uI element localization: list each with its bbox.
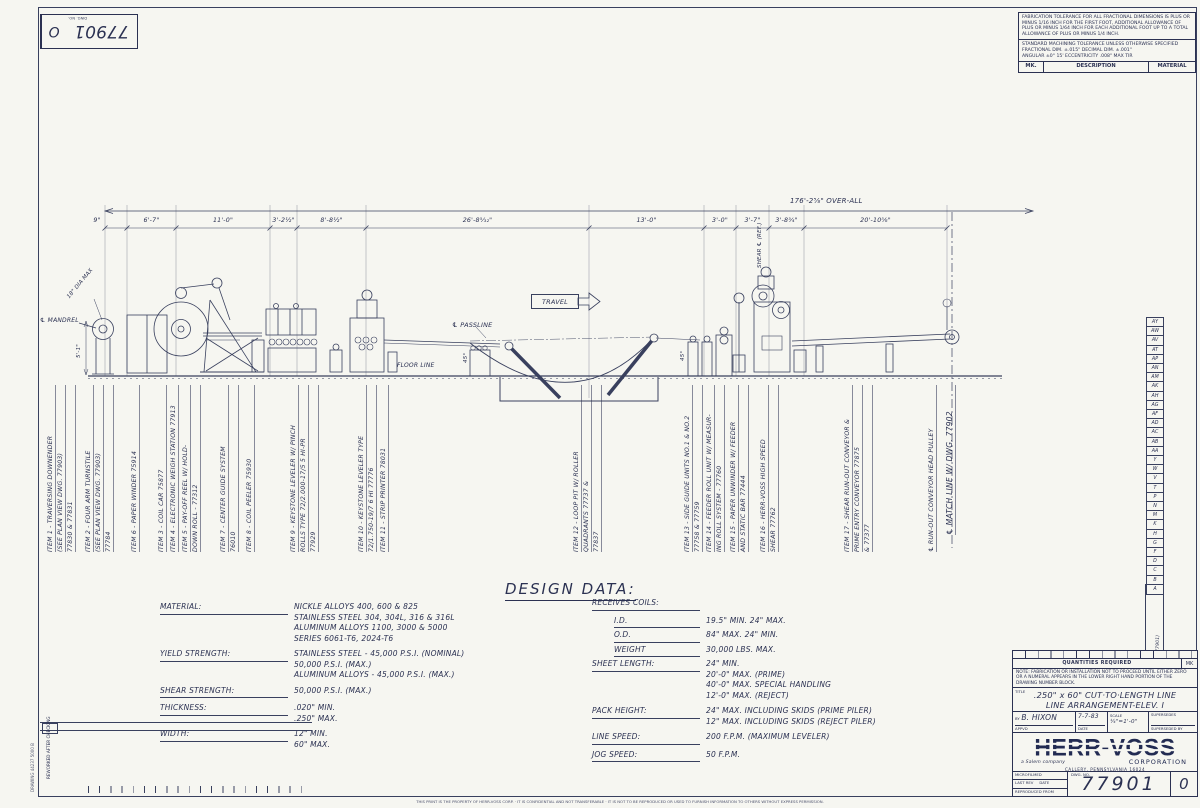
angle-label-left: 45° <box>463 353 469 363</box>
parts-mk-header: MK. <box>1019 62 1044 72</box>
design-data-values: 84" MAX. 24" MIN. <box>700 630 778 641</box>
quantities-label: QUANTITIES REQUIRED <box>1013 661 1181 666</box>
dwg-number-cell: DWG. NO. 77901 <box>1068 772 1170 796</box>
drawing-sheet: 77901 DWG. NO. O FABRICATION TOLERANCE F… <box>0 0 1200 808</box>
item-callout-line: ITEM 2 - FOUR ARM TURNSTILE <box>84 385 94 552</box>
herr-voss-logo: HERR-VOSS <box>1034 736 1175 759</box>
quantities-bar: QUANTITIES REQUIRED MK <box>1013 659 1197 669</box>
design-data-value: 24" MAX. INCLUDING SKIDS (PRIME PILER) <box>706 706 876 717</box>
item-callout-line: ITEM 17 - SHEAR RUN-OUT CONVEYOR & <box>843 385 853 552</box>
design-data-row: WIDTH:12" MIN.60" MAX. <box>160 729 580 750</box>
logo-stripe <box>1034 743 1175 745</box>
dimension-segment-label: 26'-8⁵⁄₃₂" <box>463 217 493 224</box>
item-callout: ITEM 15 - PAPER UNWINDER W/ FEEDERAND ST… <box>729 385 749 552</box>
title-label: TITLE <box>1015 689 1025 694</box>
dwg-number-row: MICROFILMED LAST REV DATE REPRODUCED FRO… <box>1013 772 1197 796</box>
corner-dwg-number: 77901 DWG. NO. <box>66 15 137 48</box>
corner-dwg-number-block: 77901 DWG. NO. O <box>40 14 138 49</box>
item-callout-line: ITEM 5 - PAY-OFF REEL W/ HOLD- <box>181 385 191 552</box>
item-callout: ITEM 10 - KEYSTONE LEVELER TYPE72/1.750-… <box>357 385 377 552</box>
date-cell: 7-7-83 DATE <box>1076 712 1108 732</box>
item-callout-line: ITEM 10 - KEYSTONE LEVELER TYPE <box>357 385 367 552</box>
scale-label: SCALE <box>1110 713 1122 718</box>
supersedes-cell: SUPERSEDES SUPERSEDED BY <box>1149 712 1197 732</box>
item-callout-line: 76010 <box>229 385 239 552</box>
design-data-values: 200 F.P.M. (MAXIMUM LEVELER) <box>700 732 830 743</box>
item-callout: ITEM 3 - COIL CAR 75877 <box>157 385 167 552</box>
tolerance-block: FABRICATION TOLERANCE FOR ALL FRACTIONAL… <box>1018 12 1196 73</box>
margin-line <box>40 730 312 731</box>
design-data-values: 30,000 LBS. MAX. <box>700 645 776 656</box>
design-data-value: 84" MAX. 24" MIN. <box>706 630 778 641</box>
overall-dimension: 176'-2⅝" OVER-ALL <box>790 197 863 205</box>
design-data-left-column: MATERIAL:NICKLE ALLOYS 400, 600 & 825STA… <box>160 602 580 755</box>
item-callout-line: ITEM 3 - COIL CAR 75877 <box>157 385 167 552</box>
date-label: DATE <box>1078 725 1105 732</box>
item-callout-line: 77830 & 77831 <box>66 385 76 552</box>
machining-tolerance-note: STANDARD MACHINING TOLERANCE UNLESS OTHE… <box>1018 40 1196 62</box>
design-data-value: NICKLE ALLOYS 400, 600 & 825 <box>294 602 455 613</box>
mandrel-label: ℄ MANDREL <box>40 317 79 324</box>
appvd-label: APPVD <box>1015 725 1073 732</box>
design-data-row: MATERIAL:NICKLE ALLOYS 400, 600 & 825STA… <box>160 602 580 644</box>
margin-ruler <box>88 786 312 793</box>
item-callout: ITEM 2 - FOUR ARM TURNSTILE(SEE PLAN VIE… <box>84 385 114 552</box>
design-data-label: YIELD STRENGTH: <box>160 649 288 662</box>
design-data-row: JOG SPEED:50 F.P.M. <box>592 750 1032 763</box>
design-data-value: SERIES 6061-T6, 2024-T6 <box>294 634 455 645</box>
item-callout-line: 72/1.750-19/7 6 HI 77776 <box>367 385 377 552</box>
corner-revision: O <box>41 15 66 48</box>
item-callout-line: (SEE PLAN VIEW DWG. 77903) <box>56 385 66 552</box>
item-callout: ℄ RUN-OUT CONVEYOR HEAD PULLEY <box>927 385 937 552</box>
last-rev-label: LAST REV <box>1015 781 1033 786</box>
item-callout-line: ITEM 14 - FEEDER ROLL UNIT W/ MEASUR- <box>705 385 715 552</box>
dimension-segment-label: 9" <box>93 217 100 224</box>
design-data-label: RECEIVES COILS: <box>592 598 700 611</box>
design-data-value: 50 F.P.M. <box>706 750 740 761</box>
parts-list-header: MK. DESCRIPTION MATERIAL <box>1018 62 1196 73</box>
design-data-value: 50,000 P.S.I. (MAX.) <box>294 660 464 671</box>
supersedes-label: SUPERSEDES <box>1151 713 1195 718</box>
approval-row: BY B. HIXON APPVD 7-7-83 DATE SCALE ¼"=1… <box>1013 712 1197 733</box>
item-callout-line: ING ROLL SYSTEM - 77760 <box>715 385 725 552</box>
item-callout-line: ℄ RUN-OUT CONVEYOR HEAD PULLEY <box>927 385 937 552</box>
design-data-value: STAINLESS STEEL - 45,000 P.S.I. (NOMINAL… <box>294 649 464 660</box>
design-data-label: LINE SPEED: <box>592 732 700 745</box>
item-callout-line: ITEM 4 - ELECTRONIC WEIGH STATION 77913 <box>169 385 179 552</box>
reproduced-from-label: REPRODUCED FROM <box>1013 789 1067 796</box>
design-data-value: 20'-0" MAX. (PRIME) <box>706 670 831 681</box>
design-data-label: SHEAR STRENGTH: <box>160 686 288 699</box>
dimension-segment-label: 13'-0" <box>636 217 656 224</box>
item-callout-line: ITEM 16 - HERR-VOSS HIGH SPEED <box>759 385 769 552</box>
design-data-row: SHEET LENGTH:24" MIN.20'-0" MAX. (PRIME)… <box>592 659 1032 701</box>
design-data-row: O.D.84" MAX. 24" MIN. <box>592 630 1032 643</box>
dimension-segment-label: 20'-10⅝" <box>860 217 891 224</box>
design-data-values: STAINLESS STEEL - 45,000 P.S.I. (NOMINAL… <box>288 649 464 681</box>
design-data-row: WEIGHT30,000 LBS. MAX. <box>592 645 1032 658</box>
quantities-grid <box>1013 651 1197 659</box>
mk-cell: MK <box>1181 659 1197 668</box>
item-callout-line: ITEM 15 - PAPER UNWINDER W/ FEEDER <box>729 385 739 552</box>
design-data-values: .020" MIN..250" MAX. <box>288 703 338 724</box>
logo-stripe <box>1034 749 1175 751</box>
revision-cell-main: 0 <box>1170 772 1197 796</box>
superseded-by-label: SUPERSEDED BY <box>1151 725 1195 732</box>
design-data-values: 24" MAX. INCLUDING SKIDS (PRIME PILER)12… <box>700 706 876 727</box>
item-callout-line: ITEM 1 - TRAVERSING DOWNENDER <box>46 385 56 552</box>
design-data-value: 200 F.P.M. (MAXIMUM LEVELER) <box>706 732 830 743</box>
fabrication-tolerance-note: FABRICATION TOLERANCE FOR ALL FRACTIONAL… <box>1018 12 1196 40</box>
design-data-value: ALUMINUM ALLOYS - 45,000 P.S.I. (MAX.) <box>294 670 464 681</box>
item-callout: ITEM 16 - HERR-VOSS HIGH SPEEDSHEAR 7776… <box>759 385 779 552</box>
design-data-row: LINE SPEED:200 F.P.M. (MAXIMUM LEVELER) <box>592 732 1032 745</box>
design-data-label: SHEET LENGTH: <box>592 659 700 672</box>
design-data-values: 19.5" MIN. 24" MAX. <box>700 616 786 627</box>
item-callout-line: ITEM 6 - PAPER WINDER 75914 <box>130 385 140 552</box>
design-data-row: RECEIVES COILS: <box>592 598 1032 611</box>
item-callout-line: 77758 & 77759 <box>693 385 703 552</box>
parts-material-header: MATERIAL <box>1149 62 1195 72</box>
design-data-row: PACK HEIGHT:24" MAX. INCLUDING SKIDS (PR… <box>592 706 1032 727</box>
item-callout: ITEM 6 - PAPER WINDER 75914 <box>130 385 140 552</box>
record-cells: MICROFILMED LAST REV DATE REPRODUCED FRO… <box>1013 772 1068 796</box>
item-callout: ITEM 5 - PAY-OFF REEL W/ HOLD-DOWN ROLL … <box>181 385 201 552</box>
design-data-value: 12" MAX. INCLUDING SKIDS (REJECT PILER) <box>706 717 876 728</box>
reworked-note: REWORKED AFTER CHECKING <box>46 717 51 780</box>
design-data-value: 19.5" MIN. 24" MAX. <box>706 616 786 627</box>
design-data-value: ALUMINUM ALLOYS 1100, 3000 & 5000 <box>294 623 455 634</box>
company-name: HERR-VOSS <box>1034 734 1175 761</box>
item-callout-line: ITEM 8 - COIL PEELER 75930 <box>245 385 255 552</box>
design-data-values: 50 F.P.M. <box>700 750 740 761</box>
last-rev-date-label: DATE <box>1039 781 1049 786</box>
dwg-number-value: 77901 <box>1081 773 1156 795</box>
design-data-right-column: RECEIVES COILS:I.D.19.5" MIN. 24" MAX.O.… <box>592 598 1032 767</box>
design-data-value: STAINLESS STEEL 304, 304L, 316 & 316L <box>294 613 455 624</box>
design-data-value: 12'-0" MAX. (REJECT) <box>706 691 831 702</box>
item-callout-line: (SEE PLAN VIEW DWG. 77903) <box>94 385 104 552</box>
item-callout-line: QUADRANTS 77737 & <box>582 385 592 552</box>
angle-label-right: 45° <box>680 351 686 361</box>
design-data-label: WEIGHT <box>614 645 700 658</box>
travel-direction-label: TRAVEL <box>531 294 579 309</box>
design-data-value: 40'-0" MAX. SPECIAL HANDLING <box>706 680 831 691</box>
company-logo-block: HERR-VOSS a Salem company CORPORATION CA… <box>1013 733 1197 772</box>
design-data-value: 24" MIN. <box>706 659 831 670</box>
scale-value: ¼"=1'-0" <box>1110 719 1146 725</box>
fine-print: THIS PRINT IS THE PROPERTY OF HERR-VOSS … <box>400 799 840 804</box>
item-callout: ℄ MATCH LINE W/ DWG. 77902 <box>944 385 956 535</box>
item-callout: ITEM 17 - SHEAR RUN-OUT CONVEYOR &PRIME … <box>843 385 873 552</box>
parts-description-header: DESCRIPTION <box>1044 62 1149 72</box>
item-callout-line: AND STATIC BAR 77444 <box>739 385 749 552</box>
dwg-no-label: DWG. NO. <box>1071 773 1090 778</box>
design-data-values: 50,000 P.S.I. (MAX.) <box>288 686 372 697</box>
design-data-label: JOG SPEED: <box>592 750 700 763</box>
item-callout-line: ITEM 7 - CENTER GUIDE SYSTEM <box>219 385 229 552</box>
design-data-row: YIELD STRENGTH:STAINLESS STEEL - 45,000 … <box>160 649 580 681</box>
item-callout-line: ITEM 12 - LOOP PIT W/ ROLLER <box>572 385 582 552</box>
dwg-number: 77901 <box>74 22 129 42</box>
corporation-label: CORPORATION <box>1129 758 1187 766</box>
scale-cell: SCALE ¼"=1'-0" <box>1108 712 1149 732</box>
item-callout-line: 77837 <box>592 385 602 552</box>
design-data-value: 60" MAX. <box>294 740 330 751</box>
design-data-values: NICKLE ALLOYS 400, 600 & 825STAINLESS ST… <box>288 602 455 644</box>
item-callout: ITEM 13 - SIDE GUIDE UNITS NO.1 & NO.277… <box>683 385 703 552</box>
title-line-2: LINE ARRANGEMENT-ELEV. I <box>1015 700 1195 710</box>
revision-extra-box <box>1145 584 1164 660</box>
item-callout-line: PRIME ENTRY CONVEYOR 77875 <box>853 385 863 552</box>
item-callout-line: 77784 <box>104 385 114 552</box>
dimension-segment-label: 6'-7" <box>144 217 160 224</box>
date-value: 7-7-83 <box>1078 713 1099 720</box>
item-callout: ITEM 9 - KEYSTONE LEVELER W/ PINCHROLLS … <box>289 385 319 552</box>
design-data-row: SHEAR STRENGTH:50,000 P.S.I. (MAX.) <box>160 686 580 699</box>
shear-centerline-label: SHEAR ℄ (REF.) <box>757 222 763 268</box>
title-block: QUANTITIES REQUIRED MK NOTE: FABRICATION… <box>1012 650 1198 797</box>
design-data-label: O.D. <box>614 630 700 643</box>
item-callout-line: DOWN ROLL - 77312 <box>191 385 201 552</box>
item-callout-line: SHEAR 77762 <box>769 385 779 552</box>
drawing-title: TITLE .250" x 60" CUT·TO·LENGTH LINE LIN… <box>1013 688 1197 712</box>
item-callout: ITEM 12 - LOOP PIT W/ ROLLERQUADRANTS 77… <box>572 385 602 552</box>
height-dimension: 5'-1" <box>76 344 82 358</box>
dimension-segment-label: 8'-8½" <box>320 217 342 224</box>
item-callout: ITEM 4 - ELECTRONIC WEIGH STATION 77913 <box>169 385 179 552</box>
design-data-row: THICKNESS:.020" MIN..250" MAX. <box>160 703 580 724</box>
design-data-row: I.D.19.5" MIN. 24" MAX. <box>592 616 1032 629</box>
drawn-by-cell: BY B. HIXON APPVD <box>1013 712 1076 732</box>
item-callout-line: ITEM 9 - KEYSTONE LEVELER W/ PINCH <box>289 385 299 552</box>
design-data-value: .020" MIN. <box>294 703 338 714</box>
machining-line3: ANGULAR ±0° 15' ECCENTRICITY .008" MAX T… <box>1022 54 1192 60</box>
design-data-value: 30,000 LBS. MAX. <box>706 645 776 656</box>
item-callout-line: 77929 <box>309 385 319 552</box>
dimension-segment-label: 3'-8¾" <box>775 217 797 224</box>
design-data-values: 24" MIN.20'-0" MAX. (PRIME)40'-0" MAX. S… <box>700 659 831 701</box>
passline-label: ℄ PASSLINE <box>452 321 492 329</box>
item-callout: ITEM 7 - CENTER GUIDE SYSTEM76010 <box>219 385 239 552</box>
margin-line <box>40 722 312 723</box>
item-callout-line: ITEM 13 - SIDE GUIDE UNITS NO.1 & NO.2 <box>683 385 693 552</box>
item-callout-line: ROLLS TYPE 72/2.000-17/5 5 HI-PR <box>299 385 309 552</box>
dimension-segment-label: 3'-0" <box>712 217 728 224</box>
item-callout: ITEM 14 - FEEDER ROLL UNIT W/ MEASUR-ING… <box>705 385 725 552</box>
dimension-segment-label: 3'-2½" <box>272 217 294 224</box>
form-number: DRAWING 44237 5000 B <box>30 743 35 792</box>
proceed-note: NOTE: FABRICATION OR INSTALLATION NOT TO… <box>1013 669 1197 688</box>
last-rev-cell: LAST REV DATE <box>1013 780 1067 788</box>
item-callout-line: ITEM 11 - STRIP PRINTER 78031 <box>379 385 389 552</box>
item-callout: ITEM 1 - TRAVERSING DOWNENDER(SEE PLAN V… <box>46 385 76 552</box>
item-callout-line: & 77377 <box>863 385 873 552</box>
dimension-segment-label: 11'-0" <box>213 217 233 224</box>
design-data-label: MATERIAL: <box>160 602 288 615</box>
title-line-1: .250" x 60" CUT·TO·LENGTH LINE <box>1015 690 1195 700</box>
design-data-values: 12" MIN.60" MAX. <box>288 729 330 750</box>
design-data-label: PACK HEIGHT: <box>592 706 700 719</box>
dwg-number-label: DWG. NO. <box>68 16 87 20</box>
salem-company-label: a Salem company <box>1021 760 1065 765</box>
by-label: BY <box>1015 716 1020 721</box>
item-callout-line: ℄ MATCH LINE W/ DWG. 77902 <box>944 385 956 535</box>
design-data-label: I.D. <box>614 616 700 629</box>
design-data-value: 50,000 P.S.I. (MAX.) <box>294 686 372 697</box>
design-data-label: THICKNESS: <box>160 703 288 716</box>
item-callout: ITEM 8 - COIL PEELER 75930 <box>245 385 255 552</box>
microfilmed-label: MICROFILMED <box>1013 772 1067 780</box>
item-callout: ITEM 11 - STRIP PRINTER 78031 <box>379 385 389 552</box>
drawn-by-name: B. HIXON <box>1021 713 1057 722</box>
floor-line-label: FLOOR LINE <box>397 362 435 369</box>
